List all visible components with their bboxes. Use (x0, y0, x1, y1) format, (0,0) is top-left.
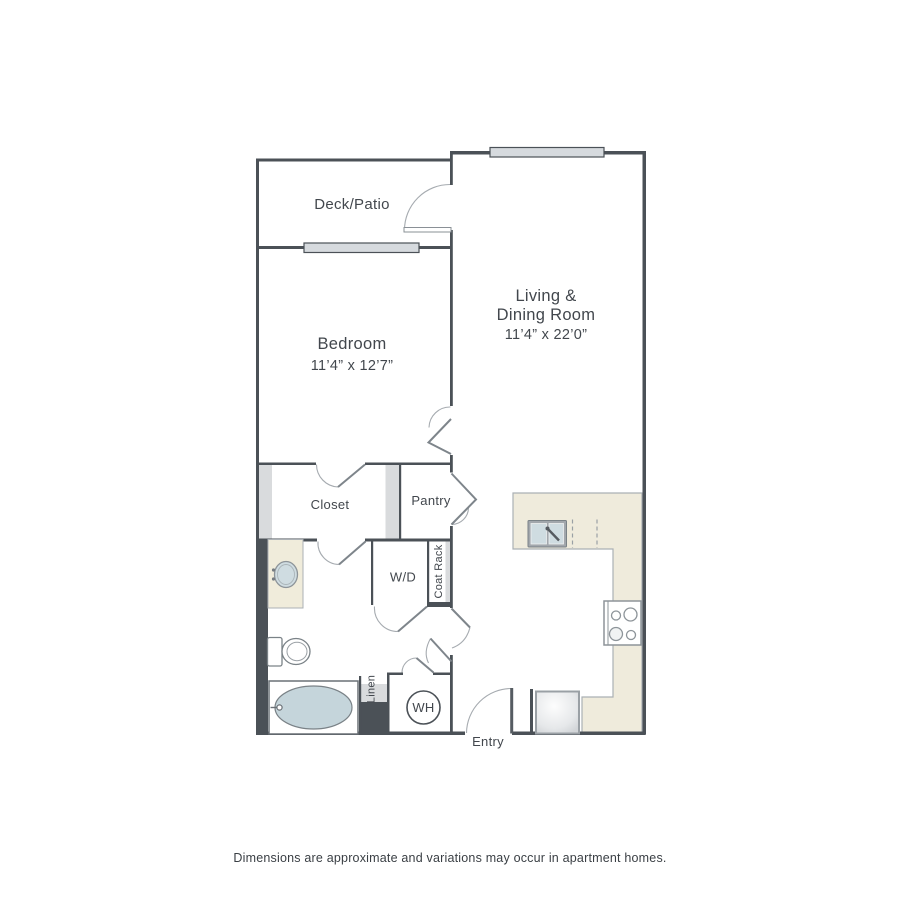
door-deck (404, 185, 451, 233)
burner-top-left (612, 611, 621, 620)
wall-deck-top (256, 159, 451, 162)
window-living (490, 148, 604, 158)
water-heater-label: WH (412, 700, 434, 715)
wall-coatrack-bottom (427, 602, 453, 607)
closet-shelf-right (386, 465, 400, 539)
burner-top-right (624, 608, 637, 621)
wall-entry-stub (530, 689, 533, 734)
door-water-heater (402, 658, 434, 673)
bedroom-dimensions: 11’4” x 12’7” (311, 358, 394, 374)
living-label-line1: Living & (515, 287, 576, 305)
door-closet (317, 465, 366, 488)
wall-wh-top-right (433, 673, 453, 676)
laundry-label: W/D (390, 570, 416, 585)
wall-linen-right (387, 673, 390, 735)
door-bathroom (318, 542, 366, 565)
wall-bath-thick (256, 539, 268, 735)
toilet-tank (268, 638, 283, 667)
burner-bottom-left (610, 628, 623, 641)
closet-label: Closet (311, 497, 350, 512)
doors (317, 185, 514, 734)
door-pantry (452, 474, 477, 525)
wall-left (256, 159, 259, 541)
wall-closet-pantry-divider (399, 463, 401, 540)
living-dimensions: 11’4” x 22’0” (505, 327, 588, 343)
wall-linen-left (359, 676, 361, 735)
bathroom-fixtures (268, 540, 359, 735)
wall-closet-top-right (365, 463, 451, 466)
walls (256, 151, 646, 735)
floor-plan-canvas: WH Deck/Patio Living & Dining Room 11’4”… (0, 0, 900, 900)
refrigerator (536, 692, 579, 734)
wall-coatrack-left (427, 540, 429, 603)
deck-patio-label: Deck/Patio (314, 196, 390, 213)
wall-bath-top-right (365, 539, 453, 542)
room-labels: Deck/Patio Living & Dining Room 11’4” x … (311, 196, 596, 749)
wall-wh-top-left (388, 673, 403, 676)
door-entry (467, 688, 514, 734)
coat-rack-label: Coat Rack (433, 544, 445, 598)
coat-rack-strip (446, 541, 451, 602)
wall-right (643, 151, 647, 735)
wall-closet-top-left (256, 463, 316, 466)
bedroom-label: Bedroom (317, 335, 386, 353)
water-heater: WH (407, 691, 440, 724)
toilet (268, 638, 311, 667)
door-hall-lower (426, 639, 451, 664)
linen-label: Linen (366, 675, 378, 703)
window-bedroom (304, 243, 419, 253)
door-laundry (374, 607, 427, 632)
floor-plan-page: WH Deck/Patio Living & Dining Room 11’4”… (0, 0, 900, 900)
vanity (268, 540, 303, 609)
pantry-label: Pantry (411, 493, 451, 508)
wall-laundry-left (371, 540, 373, 605)
door-hall-upper (452, 609, 471, 649)
burner-bottom-right (627, 631, 636, 640)
entry-label: Entry (472, 734, 504, 749)
stove (604, 601, 641, 645)
linen-wall-block (361, 702, 387, 733)
bathtub (269, 681, 358, 734)
kitchen-sink (528, 521, 567, 548)
living-label-line2: Dining Room (497, 306, 596, 324)
vanity-faucet (272, 568, 275, 571)
door-bedroom (429, 407, 452, 454)
disclaimer-text: Dimensions are approximate and variation… (233, 851, 666, 865)
closet-shelf-left (259, 465, 273, 539)
